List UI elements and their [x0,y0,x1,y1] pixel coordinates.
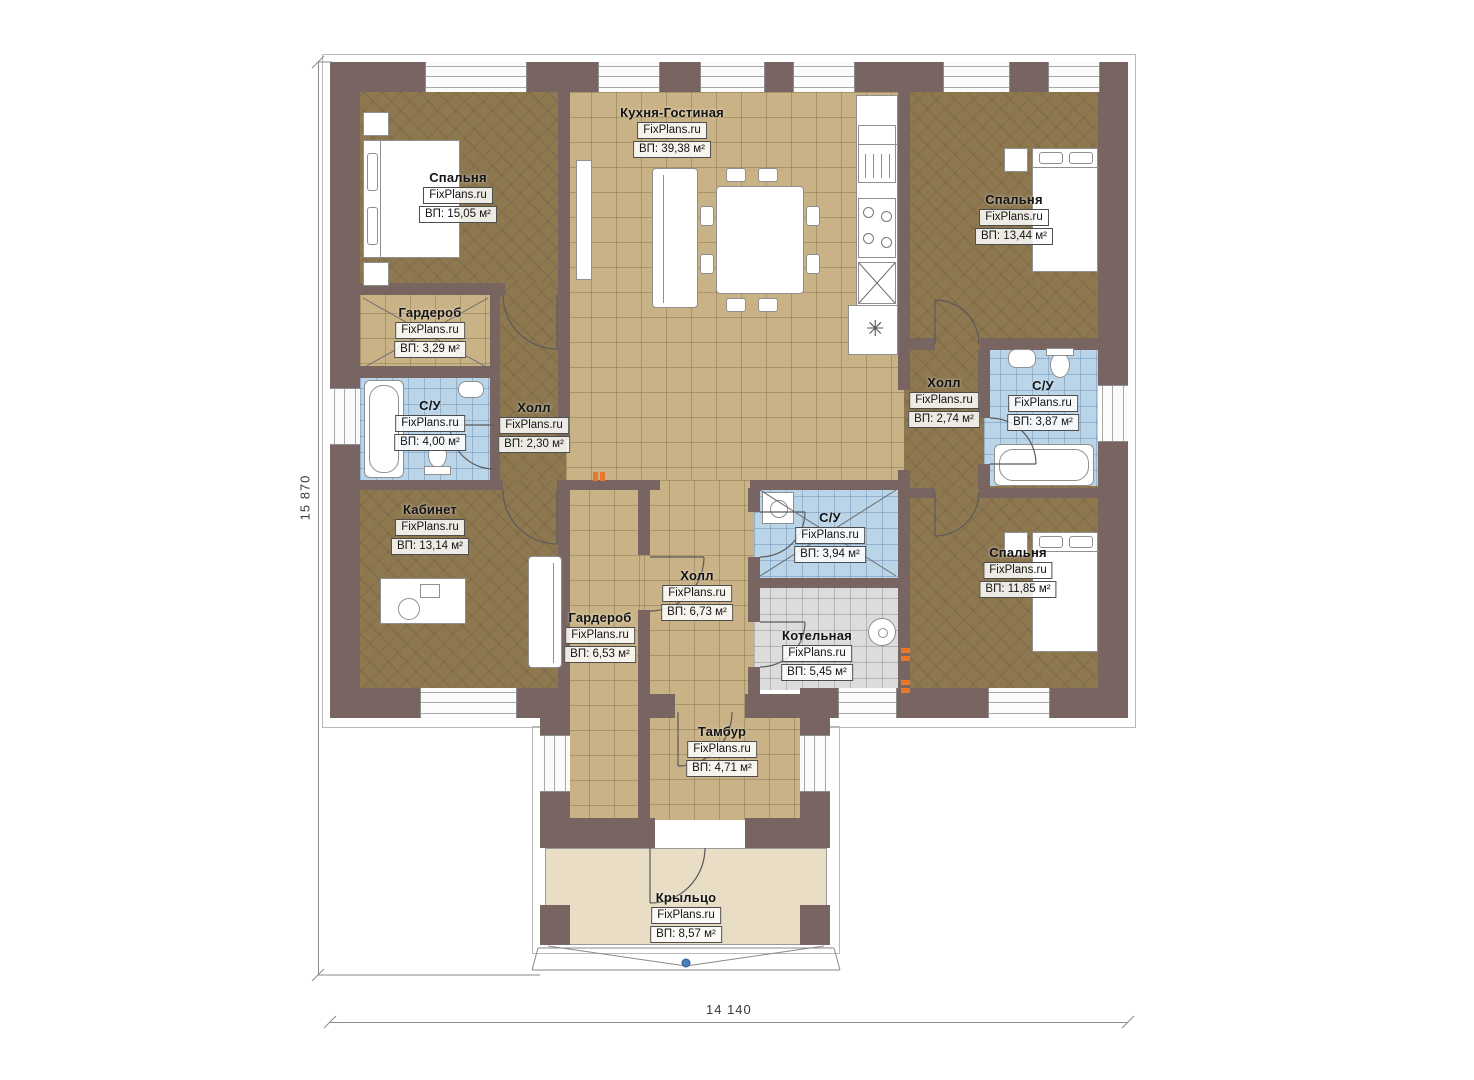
wall-int [748,667,760,700]
sink-icon: ✳ [866,316,884,342]
room-area: ВП: 3,94 м² [794,546,866,563]
room-area: ВП: 4,71 м² [686,760,758,777]
room-label-bath-left: С/У FixPlans.ru ВП: 4,00 м² [394,398,466,451]
node-marker [682,959,690,967]
window [1098,385,1128,442]
wall-int [898,470,910,488]
room-area: ВП: 2,74 м² [908,411,980,428]
window [700,62,765,92]
nightstand [363,262,389,286]
window [1048,62,1100,92]
room-area: ВП: 39,38 м² [633,141,711,158]
room-name: Спальня [419,170,497,185]
wall-tambour-bottom-b [745,818,800,848]
wall-int [898,92,910,390]
room-name: Спальня [979,545,1056,560]
room-watermark: FixPlans.ru [637,122,707,139]
window [420,688,517,718]
washing-machine [762,492,794,524]
wall-int [760,578,898,588]
window [988,688,1050,718]
room-label-bedroom-3: Спальня FixPlans.ru ВП: 11,85 м² [979,545,1056,598]
room-name: Гардероб [394,305,466,320]
room-watermark: FixPlans.ru [662,585,732,602]
room-label-kitchen: Кухня-Гостиная FixPlans.ru ВП: 39,38 м² [620,105,724,158]
room-area: ВП: 15,05 м² [419,206,497,223]
room-name: С/У [394,398,466,413]
stove [858,198,896,258]
window [598,62,660,92]
room-watermark: FixPlans.ru [782,645,852,662]
sofa [528,556,562,668]
room-area: ВП: 4,00 м² [394,434,466,451]
toilet-tank [424,466,451,475]
chair [700,254,714,274]
wall-int [978,464,990,490]
wall-int [638,480,650,555]
wall-int [748,557,760,622]
dimension-line-horizontal [330,1022,1128,1023]
bathtub [994,444,1094,486]
room-label-tambour: Тамбур FixPlans.ru ВП: 4,71 м² [686,724,758,777]
chair [806,206,820,226]
laptop [420,584,440,598]
chair [726,168,746,182]
radiator-icon [901,688,910,693]
toilet-tank [1046,348,1074,356]
room-area: ВП: 3,87 м² [1007,414,1079,431]
window [943,62,1010,92]
radiator-icon [901,680,910,685]
chair [758,298,778,312]
room-area: ВП: 5,45 м² [781,664,853,681]
sofa [652,168,698,308]
wall-int [650,694,675,718]
room-label-bedroom-2: Спальня FixPlans.ru ВП: 13,44 м² [975,192,1053,245]
room-name: Тамбур [686,724,758,739]
room-area: ВП: 6,53 м² [564,646,636,663]
kitchen-cabinet [858,262,896,304]
radiator-icon [600,472,605,481]
room-watermark: FixPlans.ru [979,209,1049,226]
room-name: Гардероб [564,610,636,625]
room-watermark: FixPlans.ru [795,527,865,544]
wall-int [980,488,1098,498]
room-label-porch: Крыльцо FixPlans.ru ВП: 8,57 м² [650,890,722,943]
wall-int [360,480,503,490]
room-area: ВП: 13,44 м² [975,228,1053,245]
room-name: Крыльцо [650,890,722,905]
wall-int [558,92,570,295]
wall-int [750,480,898,490]
wall-int [898,488,935,498]
dimension-line-vertical [318,62,319,975]
nightstand [1004,148,1028,172]
wall-tambour-bottom-a [570,818,655,848]
chair [700,206,714,226]
chair [758,168,778,182]
room-watermark: FixPlans.ru [423,187,493,204]
wall-int [910,338,935,350]
room-name: Спальня [975,192,1053,207]
room-watermark: FixPlans.ru [1008,395,1078,412]
window [330,388,360,445]
wall-porch-stub-right [800,905,830,945]
radiator-icon [901,648,910,653]
chair [806,254,820,274]
room-area: ВП: 13,14 м² [391,538,469,555]
room-label-bedroom-1: Спальня FixPlans.ru ВП: 15,05 м² [419,170,497,223]
room-watermark: FixPlans.ru [651,907,721,924]
wall-int [638,610,650,818]
room-watermark: FixPlans.ru [687,741,757,758]
fridge-icon [858,125,896,183]
dining-table [716,186,804,294]
nightstand [363,112,389,136]
window [425,62,527,92]
room-label-hall-center: Холл FixPlans.ru ВП: 6,73 м² [661,568,733,621]
room-name: Кухня-Гостиная [620,105,724,120]
room-area: ВП: 11,85 м² [979,581,1056,598]
room-name: Холл [908,375,980,390]
room-name: С/У [794,510,866,525]
room-watermark: FixPlans.ru [499,417,569,434]
room-label-wardrobe-bottom: Гардероб FixPlans.ru ВП: 6,53 м² [564,610,636,663]
washbasin [1008,349,1036,368]
wall-int [980,338,1098,350]
room-label-cabinet: Кабинет FixPlans.ru ВП: 13,14 м² [391,502,469,555]
dimension-label-height: 15 870 [297,475,312,521]
room-watermark: FixPlans.ru [565,627,635,644]
dimension-label-width: 14 140 [706,1002,752,1017]
floor-plan-canvas: ✳ [0,0,1474,1080]
room-label-wardrobe-left: Гардероб FixPlans.ru ВП: 3,29 м² [394,305,466,358]
window [793,62,855,92]
room-name: Холл [498,400,570,415]
room-label-bath-center: С/У FixPlans.ru ВП: 3,94 м² [794,510,866,563]
room-label-boiler: Котельная FixPlans.ru ВП: 5,45 м² [781,628,853,681]
room-label-bath-right: С/У FixPlans.ru ВП: 3,87 м² [1007,378,1079,431]
room-label-hall-small: Холл FixPlans.ru ВП: 2,30 м² [498,400,570,453]
room-name: Холл [661,568,733,583]
radiator-icon [901,656,910,661]
window [800,735,830,792]
chair [726,298,746,312]
washbasin [458,381,484,398]
room-area: ВП: 3,29 м² [394,341,466,358]
window [540,735,570,792]
wall-int [360,366,490,378]
room-name: Котельная [781,628,853,643]
room-watermark: FixPlans.ru [983,562,1053,579]
room-watermark: FixPlans.ru [395,519,465,536]
room-area: ВП: 2,30 м² [498,436,570,453]
room-watermark: FixPlans.ru [395,415,465,432]
room-label-hall-right: Холл FixPlans.ru ВП: 2,74 м² [908,375,980,428]
desk-chair [398,598,420,620]
room-name: С/У [1007,378,1079,393]
room-watermark: FixPlans.ru [909,392,979,409]
wall-porch-stub-left [540,905,570,945]
room-name: Кабинет [391,502,469,517]
room-watermark: FixPlans.ru [395,322,465,339]
boiler-unit [868,618,896,646]
tv-stand [576,160,592,280]
wall-int [748,488,760,512]
room-area: ВП: 8,57 м² [650,926,722,943]
window [838,688,897,718]
radiator-icon [593,472,598,481]
room-area: ВП: 6,73 м² [661,604,733,621]
